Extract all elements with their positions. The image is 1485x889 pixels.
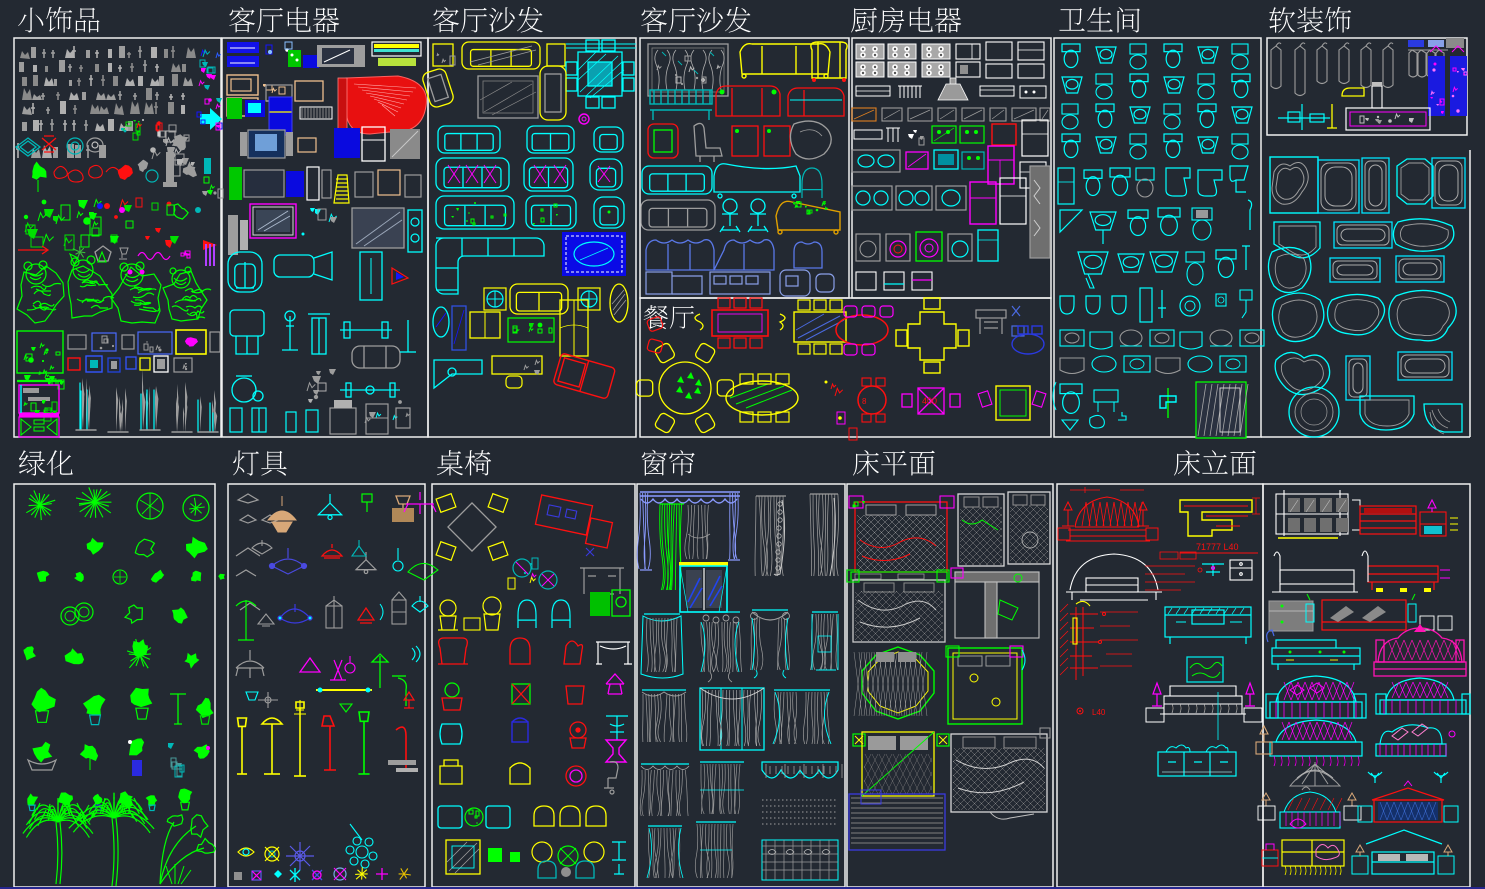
svg-text:L40: L40 (1092, 708, 1106, 717)
svg-text:400: 400 (922, 396, 937, 406)
svg-text:71777 L40: 71777 L40 (1196, 542, 1239, 552)
svg-text:8: 8 (862, 397, 867, 406)
